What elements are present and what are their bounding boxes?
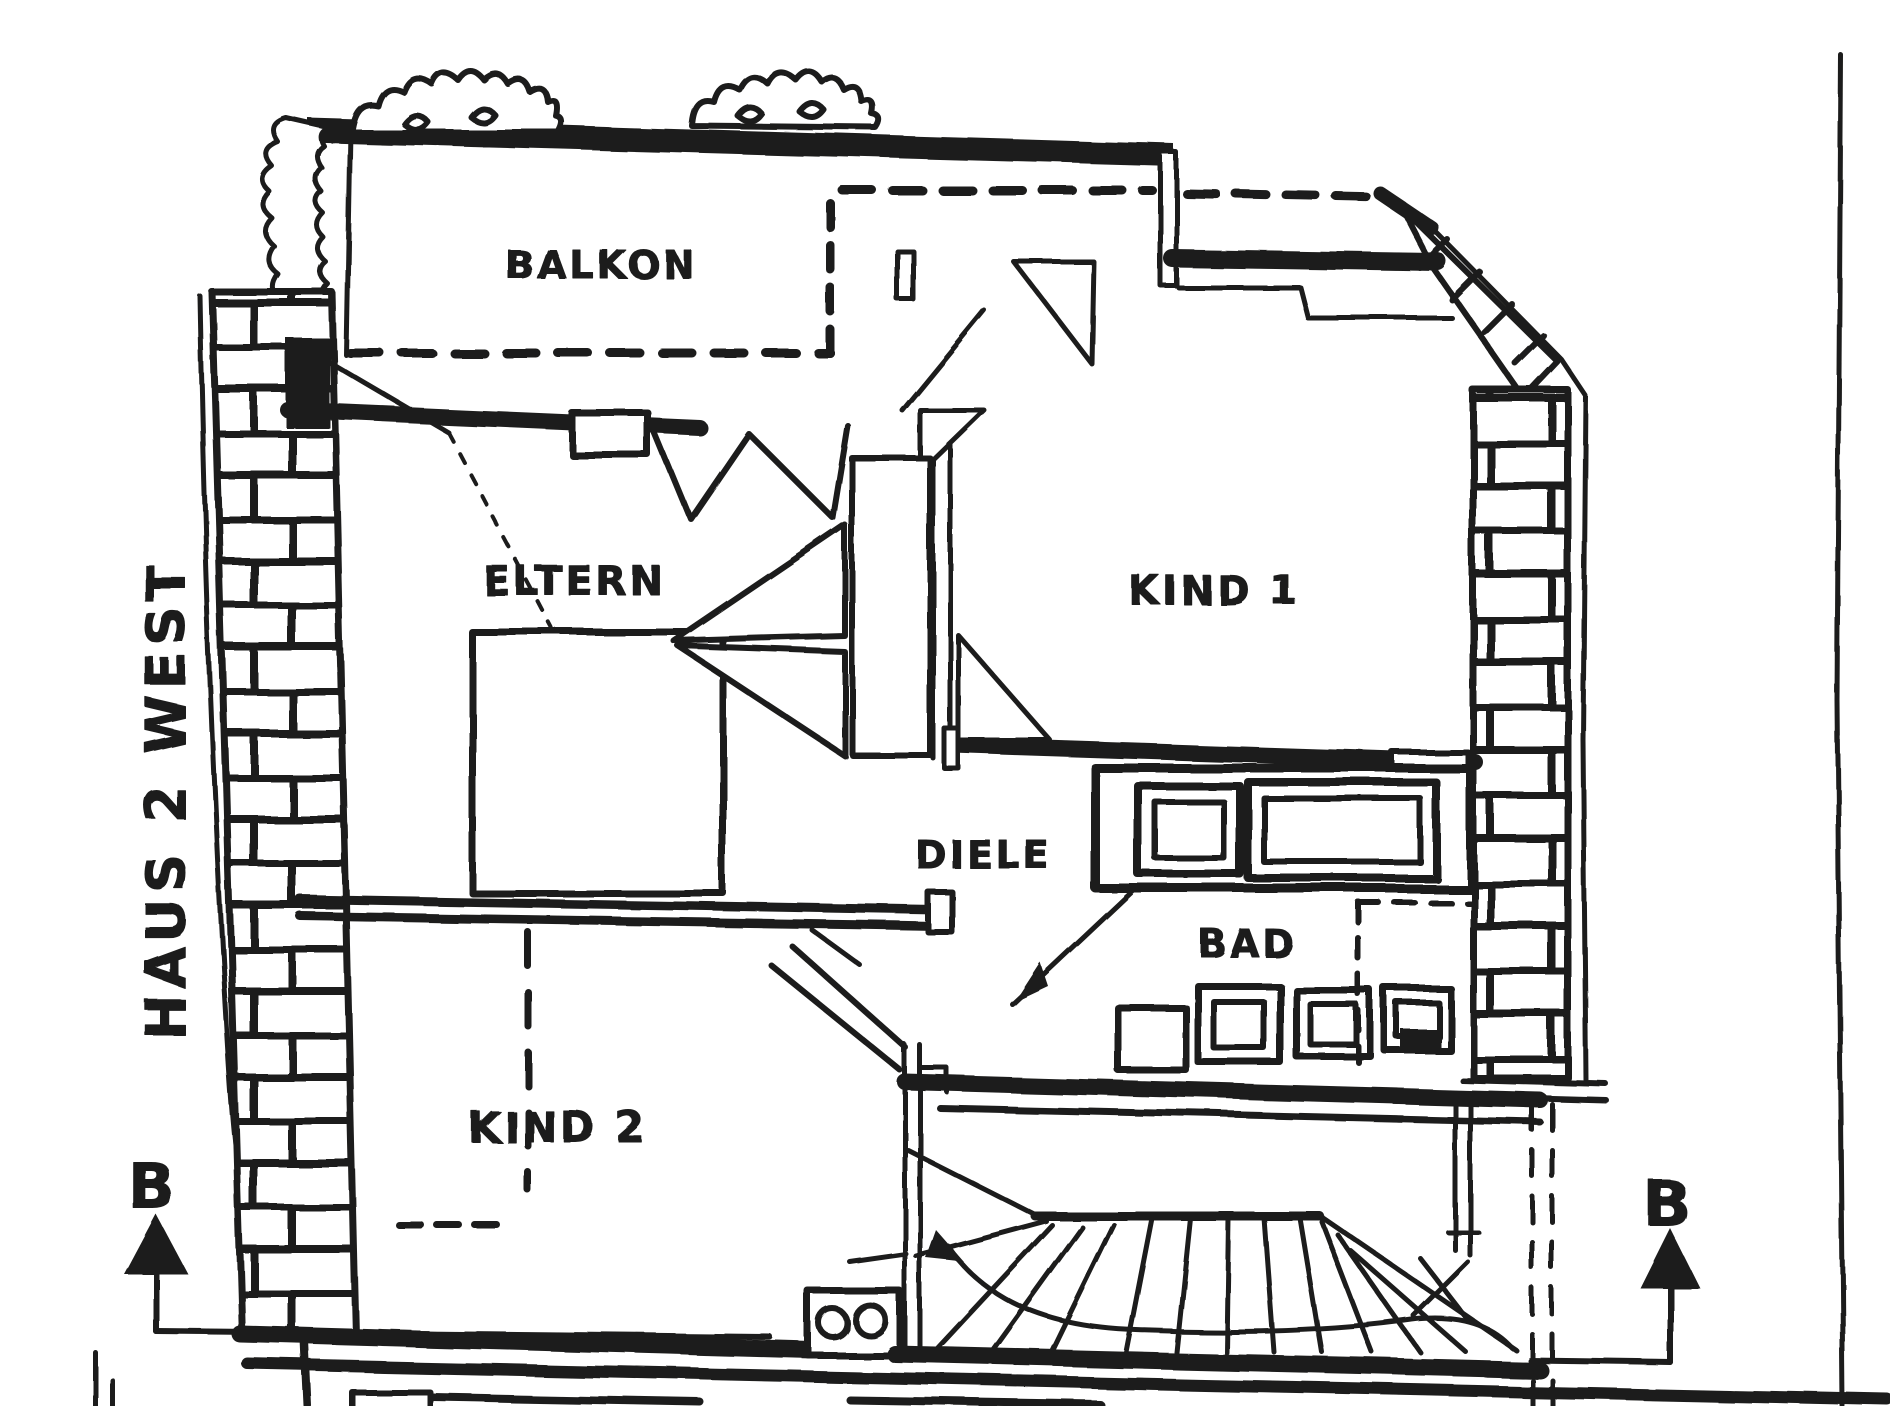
room-label-bad: BAD: [1198, 922, 1297, 966]
roof-dashed-line: [1186, 193, 1382, 197]
room-label-balkon: BALKON: [505, 243, 697, 287]
fixture-1: [1118, 1008, 1186, 1070]
corner-pier: [286, 338, 330, 428]
floor-plan-page: BALKON: [0, 0, 1890, 1406]
room-label-diele: DIELE: [915, 833, 1052, 877]
wardrobe: [852, 458, 930, 755]
floor-plan-image: BALKON: [0, 0, 1890, 1406]
room-label-kind2: KIND 2: [468, 1103, 648, 1152]
window-sill: [572, 413, 648, 455]
room-label-eltern: ELTERN: [483, 559, 666, 605]
plan-title: HAUS 2 WEST: [135, 559, 198, 1040]
room-label-kind1: KIND 1: [1128, 568, 1300, 614]
section-label-b-left: B: [128, 1150, 175, 1223]
bed: [472, 632, 723, 893]
section-label-b-right: B: [1644, 1168, 1691, 1241]
